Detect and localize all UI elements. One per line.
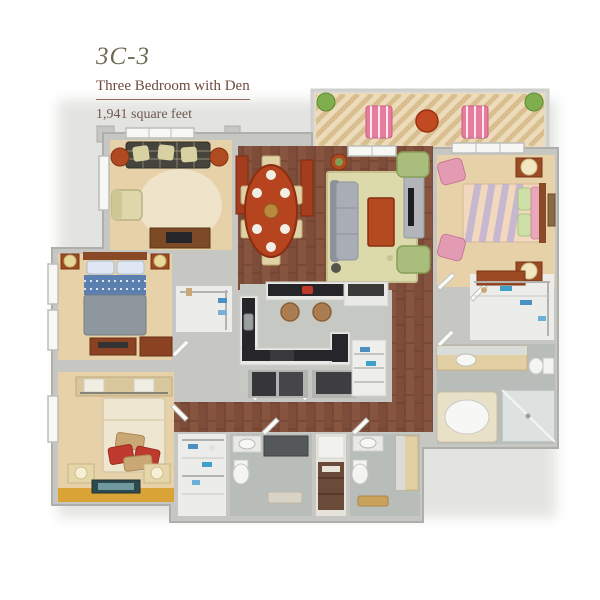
master-shower-drain	[526, 414, 531, 419]
hall-pantry-item	[360, 347, 370, 352]
master-closet-item	[500, 286, 512, 291]
floor-plan-page: 3C-3 Three Bedroom with Den 1,941 square…	[0, 0, 600, 600]
title-block: 3C-3 Three Bedroom with Den 1,941 square…	[96, 44, 250, 122]
closet3-item	[202, 462, 212, 467]
den-side-table	[210, 148, 228, 166]
dining-plate	[280, 188, 290, 198]
dining-plate	[252, 224, 262, 234]
bedroom2-lamp	[64, 255, 76, 267]
bedroom2-lamp	[154, 255, 166, 267]
kitchen-stool	[313, 303, 331, 321]
kitchen-pantry-interior	[348, 284, 384, 296]
kitchen-sink	[244, 314, 253, 330]
bedroom2-headboard	[83, 252, 147, 260]
floorplan-svg	[0, 0, 600, 600]
master-vanity-counter	[437, 346, 527, 355]
kitchen-bar-item	[302, 286, 313, 294]
bath2-sink	[239, 439, 255, 449]
den-desk-monitor	[166, 232, 192, 243]
dining-plate	[280, 224, 290, 234]
master-tub-basin	[445, 400, 489, 434]
master-closet-item	[481, 287, 487, 293]
balcony-plant	[525, 93, 543, 111]
master-closet-item	[538, 316, 546, 321]
closet2-item	[218, 310, 227, 315]
living-armchair	[397, 152, 429, 177]
den-window-left	[99, 156, 109, 210]
den-side-table	[111, 148, 129, 166]
master-lamp	[521, 159, 537, 175]
plan-code: 3C-3	[96, 44, 250, 69]
bedroom3-lamp	[151, 467, 163, 479]
balcony-plant	[317, 93, 335, 111]
living-armchair	[397, 246, 430, 273]
living-plant	[335, 158, 343, 166]
master-closet-item	[520, 300, 532, 305]
linen-upper	[318, 436, 344, 458]
master-window-top	[452, 143, 524, 153]
kitchen-stool	[281, 303, 299, 321]
dining-buffet-right	[301, 160, 313, 216]
dining-plate	[266, 170, 276, 180]
bedroom2-blanket	[84, 295, 146, 335]
den-sofa-cushion	[157, 144, 174, 161]
closet3-item	[192, 480, 200, 485]
bedroom2-window-1	[48, 264, 58, 304]
dining-plate	[252, 188, 262, 198]
bath2-mat	[268, 492, 302, 503]
plan-size: 1,941 square feet	[96, 108, 250, 122]
laundry-washer	[252, 372, 276, 396]
bedroom2-window-2	[48, 310, 58, 350]
living-rug-motif	[387, 255, 393, 261]
bedroom2-pillow	[87, 261, 114, 274]
master-bed-pillow	[518, 214, 531, 236]
master-headboard	[539, 183, 546, 243]
bath3-mat	[358, 496, 388, 506]
bath3-sink	[360, 438, 376, 448]
master-sink	[456, 354, 476, 366]
bath2-toilet-bowl	[233, 464, 249, 484]
master-mirror	[548, 194, 555, 226]
master-bed-pillow	[518, 188, 531, 210]
master-bed-bolster	[531, 187, 540, 239]
hall-floor-bottom	[172, 402, 433, 432]
hall-pantry-item	[366, 361, 376, 366]
plan-name: Three Bedroom with Den	[96, 79, 250, 100]
bedroom2-dresser-item	[98, 342, 128, 348]
dining-centerpiece	[264, 204, 278, 218]
storage-interior	[316, 372, 352, 394]
living-tv	[408, 188, 414, 226]
den-window-top	[126, 128, 194, 138]
den-sofa-cushion	[180, 146, 197, 162]
closet3-item	[209, 445, 215, 451]
bedroom3-closet-box	[134, 379, 154, 392]
living-coffee-table	[368, 198, 394, 246]
bedroom3-window	[48, 396, 58, 442]
closet2-item	[218, 298, 227, 303]
kitchen-stove	[270, 350, 294, 361]
bedroom3-lamp	[75, 467, 87, 479]
dining-plate	[266, 242, 276, 252]
bath3-side-counter	[396, 436, 405, 490]
linen-towels	[322, 466, 340, 472]
bedroom3-closet-box	[84, 379, 104, 392]
kitchen-counter	[332, 334, 348, 362]
bath3-toilet-bowl	[352, 464, 368, 484]
bedroom2-bed-blue	[84, 275, 146, 295]
balcony-table	[416, 110, 438, 132]
bedroom2-pillow	[117, 261, 144, 274]
bath2-shower	[264, 436, 308, 456]
closet2-item	[186, 288, 192, 296]
master-toilet-bowl	[529, 358, 543, 374]
laundry-dryer	[279, 372, 303, 396]
bedroom3-tray-inner	[98, 483, 134, 490]
bedroom2-dresser	[140, 337, 172, 356]
closet3-item	[188, 444, 198, 449]
master-toilet-tank	[543, 358, 554, 374]
living-rug-motif	[331, 263, 341, 273]
den-sofa-cushion	[132, 145, 150, 162]
living-sofa	[336, 182, 358, 260]
den-armchair-back	[112, 190, 122, 220]
